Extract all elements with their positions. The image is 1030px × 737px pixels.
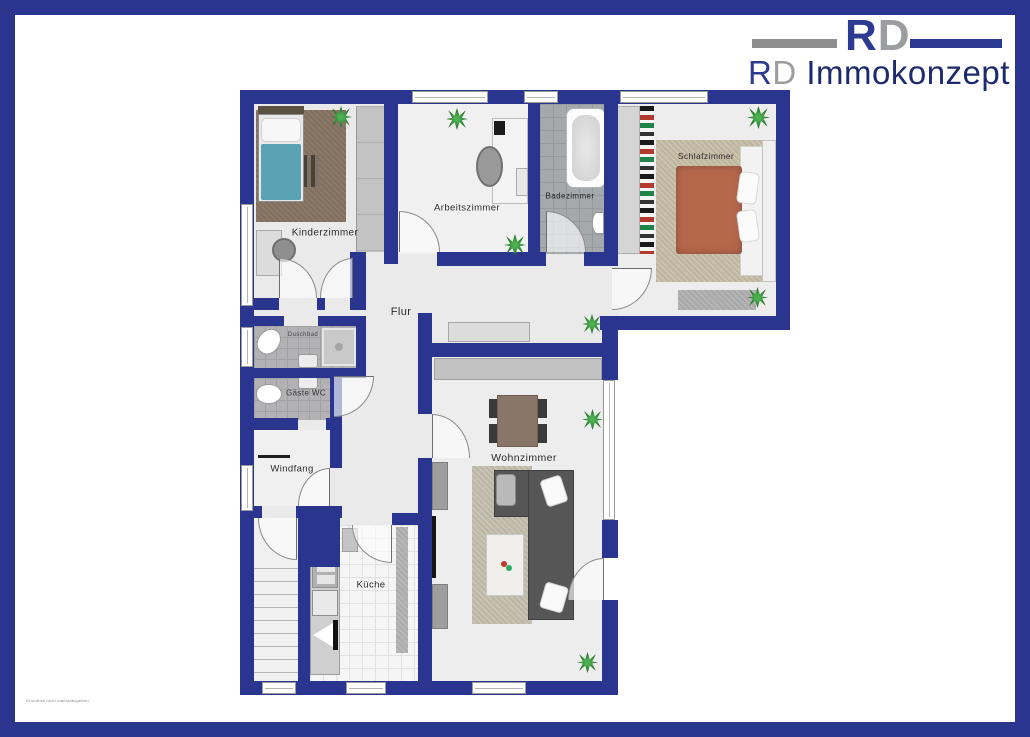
child-bed-blanket-icon bbox=[261, 144, 301, 200]
wall-kueche-wohnzimmer bbox=[418, 513, 432, 681]
monitor-icon bbox=[494, 121, 505, 135]
appliance-door-edge-icon bbox=[333, 620, 338, 650]
logo-wordmark: RD Immokonzept bbox=[748, 56, 1010, 89]
shower-drain-icon bbox=[335, 343, 343, 351]
window-wohnzimmer-bottom bbox=[472, 682, 526, 694]
plant-icon bbox=[747, 287, 768, 308]
coffee-table-icon bbox=[486, 534, 524, 596]
label-wohnzimmer: Wohnzimmer bbox=[491, 452, 557, 464]
bedroom-rug-icon bbox=[678, 290, 756, 310]
wall-exterior-left bbox=[240, 90, 254, 695]
logo-monogram-d: D bbox=[878, 11, 911, 60]
wall-wohnzimmer-top bbox=[418, 343, 616, 357]
coat-rack-icon bbox=[258, 455, 290, 458]
sofa-cushion-icon bbox=[496, 474, 516, 506]
washbasin-icon bbox=[298, 354, 318, 368]
label-duschbad: Duschbad bbox=[288, 332, 318, 338]
bathroom-sink-icon bbox=[592, 212, 604, 234]
bed-headboard-icon bbox=[762, 140, 776, 282]
window-wohnzimmer-right bbox=[603, 380, 615, 520]
wall-arbeitszimmer-badezimmer bbox=[528, 102, 540, 266]
wall-exterior-right-lower bbox=[602, 600, 618, 681]
office-cabinet-icon bbox=[516, 168, 528, 196]
label-schlafzimmer: Schlafzimmer bbox=[678, 151, 734, 161]
wall-wc-bottom bbox=[326, 418, 342, 430]
wall-kinderzimmer-arbeitszimmer bbox=[384, 102, 398, 264]
kinderzimmer-rug-pattern bbox=[303, 155, 319, 187]
plant-icon bbox=[577, 652, 598, 673]
logo-monogram: RD bbox=[845, 14, 911, 58]
dining-table-icon bbox=[497, 395, 538, 447]
staircase-steps-icon bbox=[254, 556, 298, 681]
wall-kinderzimmer-bottom bbox=[317, 298, 325, 310]
label-kinderzimmer: Kinderzimmer bbox=[292, 228, 358, 239]
wall-arbeitszimmer-bottom bbox=[437, 252, 528, 266]
hall-sideboard-icon bbox=[448, 322, 530, 342]
wall-exterior-bottom bbox=[240, 681, 618, 695]
window-staircase bbox=[262, 682, 296, 694]
logo-wordmark-r: R bbox=[748, 54, 772, 91]
logo-blue-rule bbox=[910, 39, 1002, 48]
wall-windfang-right bbox=[330, 430, 342, 468]
fine-print: Grundriss nicht maßstabsgetreu bbox=[26, 698, 89, 703]
label-badezimmer: Badezimmer bbox=[546, 192, 595, 201]
office-chair-icon bbox=[476, 146, 503, 187]
floorplan-page: RD RD Immokonzept bbox=[0, 0, 1030, 737]
wall-duschbad-right bbox=[356, 326, 366, 378]
wall-staircase-kueche bbox=[298, 513, 310, 681]
livingroom-sideboard-icon bbox=[434, 358, 602, 380]
kinderzimmer-wardrobe-icon bbox=[356, 106, 384, 252]
wall-wc-bottom bbox=[254, 418, 298, 430]
bathtub-icon bbox=[566, 108, 606, 188]
wall-windfang-bottom bbox=[254, 506, 262, 518]
plant-icon bbox=[582, 409, 603, 430]
bed-duvet-icon bbox=[676, 166, 742, 254]
window-duschbad bbox=[241, 327, 253, 367]
kitchen-side-counter-icon bbox=[396, 527, 408, 653]
label-kueche: Küche bbox=[357, 580, 386, 591]
label-flur: Flur bbox=[391, 306, 412, 318]
logo-monogram-r: R bbox=[845, 11, 878, 60]
bedroom-wardrobe-icon bbox=[616, 106, 640, 254]
wall-flur-wohnzimmer bbox=[418, 313, 432, 414]
wall-duschbad-top bbox=[318, 316, 366, 326]
wall-kueche-top bbox=[392, 513, 418, 525]
window-badezimmer bbox=[524, 91, 558, 103]
tv-board-icon bbox=[432, 462, 448, 510]
wall-badezimmer-schlafzimmer bbox=[604, 102, 618, 266]
stove-icon bbox=[312, 590, 338, 616]
table-decor-icon bbox=[506, 565, 512, 571]
child-bed-pillow-icon bbox=[261, 118, 301, 142]
window-kinderzimmer bbox=[241, 204, 253, 306]
window-kueche bbox=[346, 682, 386, 694]
plant-icon bbox=[747, 106, 770, 129]
shower-icon bbox=[322, 328, 356, 366]
wall-kinderzimmer-bottom bbox=[254, 298, 279, 310]
window-schlafzimmer bbox=[620, 91, 708, 103]
dining-chair-icon bbox=[538, 424, 547, 443]
wall-schlafzimmer-bottom bbox=[600, 316, 790, 330]
wall-exterior-right-upper bbox=[776, 90, 790, 330]
bathtub-basin-icon bbox=[572, 115, 600, 181]
plant-icon bbox=[446, 108, 468, 130]
window-arbeitszimmer bbox=[412, 91, 488, 103]
plant-icon bbox=[504, 234, 526, 256]
plant-icon bbox=[330, 106, 352, 128]
window-windfang bbox=[241, 465, 253, 511]
sink-basin-icon bbox=[317, 575, 335, 584]
wall-duschbad-top bbox=[254, 316, 284, 326]
wall-flur-wohnzimmer bbox=[418, 458, 432, 513]
child-bed-headboard-icon bbox=[258, 106, 304, 114]
dining-chair-icon bbox=[538, 399, 547, 418]
toilet-icon bbox=[256, 384, 282, 404]
wall-exterior-right-lower bbox=[602, 520, 618, 558]
label-windfang: Windfang bbox=[270, 464, 313, 475]
wall-badezimmer-bottom bbox=[528, 252, 546, 266]
logo-wordmark-text: Immokonzept bbox=[797, 54, 1010, 91]
logo-wordmark-d: D bbox=[772, 54, 796, 91]
label-arbeitszimmer: Arbeitszimmer bbox=[434, 203, 500, 214]
logo-gray-rule bbox=[752, 39, 837, 48]
wardrobe-clothes-icon bbox=[640, 106, 654, 254]
plant-icon bbox=[582, 314, 602, 334]
tv-board-icon bbox=[432, 584, 448, 629]
label-gaeste-wc: Gäste WC bbox=[286, 389, 326, 398]
bed-pillow-icon bbox=[736, 209, 760, 243]
child-bed-icon bbox=[258, 114, 304, 202]
